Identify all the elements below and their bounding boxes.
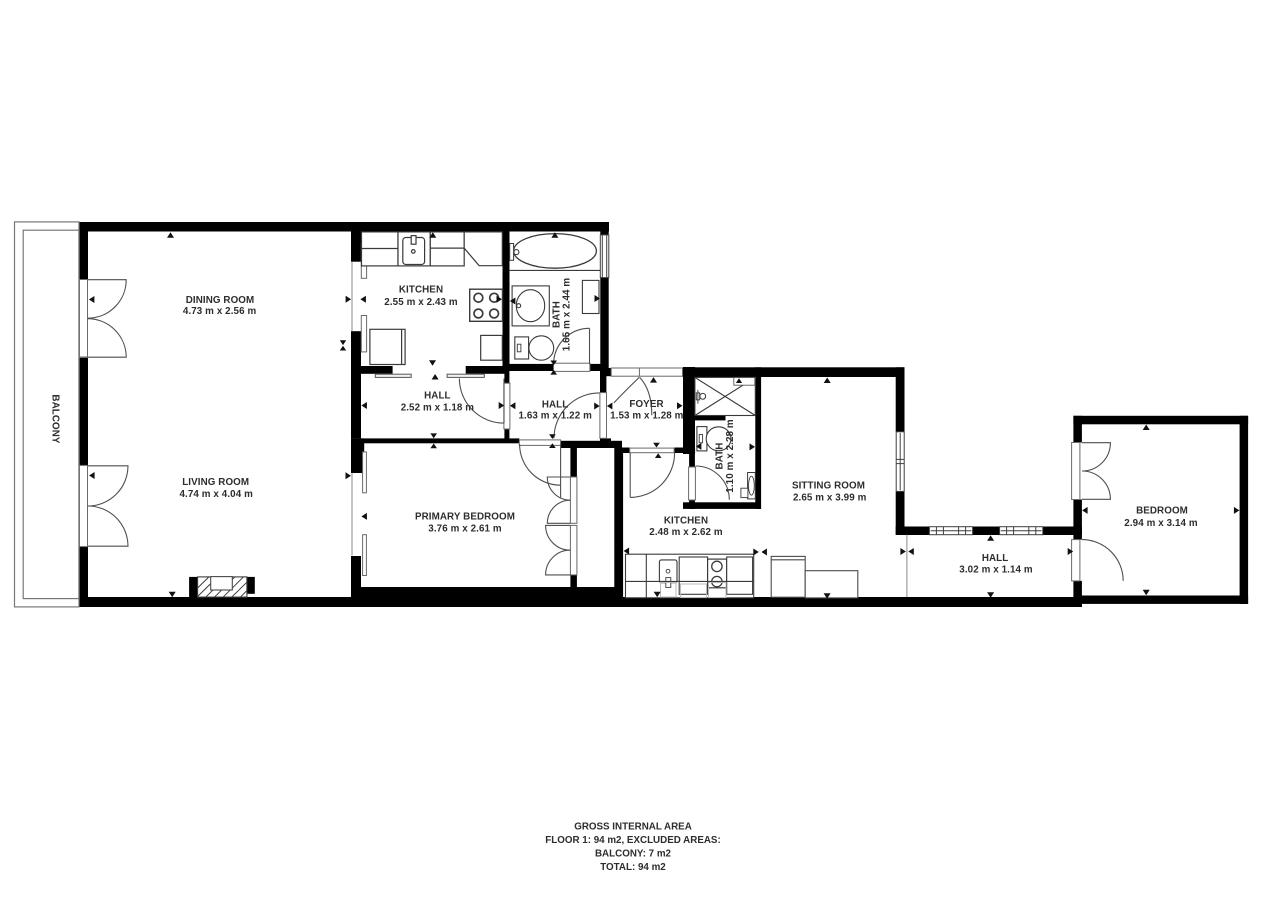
svg-text:2.52 m x 1.18 m: 2.52 m x 1.18 m <box>401 402 475 413</box>
svg-text:BATH: BATH <box>715 443 726 470</box>
svg-text:BEDROOM: BEDROOM <box>1136 506 1188 517</box>
svg-text:1.63 m x 1.22 m: 1.63 m x 1.22 m <box>518 411 592 422</box>
svg-text:LIVING ROOM: LIVING ROOM <box>182 477 249 488</box>
svg-text:1.10 m x 2.28 m: 1.10 m x 2.28 m <box>725 419 736 493</box>
svg-text:4.74 m x 4.04 m: 4.74 m x 4.04 m <box>179 489 253 500</box>
svg-text:SITTING ROOM: SITTING ROOM <box>792 480 865 491</box>
svg-text:1.65 m x 2.44 m: 1.65 m x 2.44 m <box>562 278 573 352</box>
svg-text:KITCHEN: KITCHEN <box>399 285 443 296</box>
svg-text:FOYER: FOYER <box>629 399 663 410</box>
svg-text:HALL: HALL <box>542 400 569 411</box>
svg-text:FLOOR 1: 94 m2, EXCLUDED AREAS: FLOOR 1: 94 m2, EXCLUDED AREAS: <box>545 835 720 846</box>
svg-text:GROSS INTERNAL AREA: GROSS INTERNAL AREA <box>574 822 692 833</box>
svg-text:2.48 m x 2.62 m: 2.48 m x 2.62 m <box>649 527 723 538</box>
svg-text:2.55 m x 2.43 m: 2.55 m x 2.43 m <box>384 297 458 308</box>
svg-text:HALL: HALL <box>424 391 451 402</box>
svg-text:BALCONY: 7 m2: BALCONY: 7 m2 <box>595 848 672 859</box>
svg-text:DINING ROOM: DINING ROOM <box>186 295 255 306</box>
svg-text:3.76 m x 2.61 m: 3.76 m x 2.61 m <box>428 524 502 535</box>
svg-text:2.65 m x 3.99 m: 2.65 m x 3.99 m <box>793 492 867 503</box>
svg-text:PRIMARY BEDROOM: PRIMARY BEDROOM <box>415 511 515 522</box>
svg-text:4.73 m x 2.56 m: 4.73 m x 2.56 m <box>183 306 257 317</box>
svg-text:3.02 m x 1.14 m: 3.02 m x 1.14 m <box>959 565 1033 576</box>
svg-text:2.94 m x 3.14 m: 2.94 m x 3.14 m <box>1124 518 1198 529</box>
svg-text:BALCONY: BALCONY <box>50 394 61 444</box>
svg-text:HALL: HALL <box>982 553 1009 564</box>
svg-text:TOTAL: 94 m2: TOTAL: 94 m2 <box>600 862 666 873</box>
svg-text:KITCHEN: KITCHEN <box>664 515 708 526</box>
svg-text:1.53 m x 1.28 m: 1.53 m x 1.28 m <box>610 411 684 422</box>
